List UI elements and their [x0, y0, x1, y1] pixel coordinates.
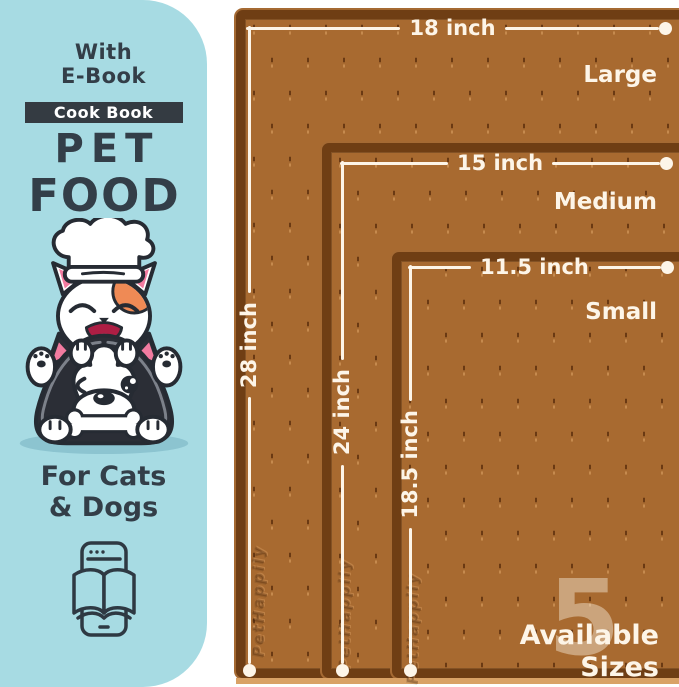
height-label-small: 18.5 inch — [398, 401, 422, 528]
ebook-tablet-icon — [66, 539, 142, 643]
dimension-line — [248, 397, 251, 664]
dimension-endpoint-dot — [336, 664, 349, 677]
dimension-line — [246, 27, 400, 30]
dimension-endpoint-dot — [404, 664, 417, 677]
size-name-large: Large — [583, 62, 657, 88]
dimension-line — [341, 465, 344, 664]
pet-food-mat-product-image: With E-Book Cook Book PET FOOD — [0, 0, 679, 687]
product-title-line1: PET — [7, 129, 207, 169]
height-label-large: 28 inch — [237, 293, 261, 397]
width-measurement-large: 18 inch — [246, 21, 672, 35]
audience-line1: For Cats — [41, 461, 167, 492]
dimension-line — [409, 265, 412, 401]
available-sizes-text: Available Sizes — [520, 620, 659, 685]
width-measurement-small: 11.5 inch — [408, 260, 674, 274]
with-ebook-line1: With — [75, 40, 132, 64]
dimension-line — [248, 26, 251, 293]
width-label-small: 11.5 inch — [471, 255, 598, 279]
product-title-line2: FOOD — [2, 173, 207, 218]
dimension-endpoint-dot — [243, 664, 256, 677]
dimension-endpoint-dot — [659, 22, 672, 35]
height-measurement-small: 18.5 inch — [403, 265, 417, 677]
cookbook-badge-label: Cook Book — [54, 103, 153, 122]
dimension-line — [408, 266, 471, 269]
dimension-endpoint-dot — [661, 261, 674, 274]
height-measurement-medium: 24 inch — [335, 161, 349, 677]
available-sizes-line1: Available — [520, 620, 659, 651]
available-sizes-line2: Sizes — [580, 652, 659, 683]
dimension-line — [598, 266, 661, 269]
size-name-medium: Medium — [554, 189, 657, 215]
size-name-small: Small — [585, 299, 657, 325]
with-ebook-text: With E-Book — [0, 40, 207, 89]
width-label-medium: 15 inch — [448, 151, 552, 175]
dimension-line — [552, 162, 660, 165]
pets-illustration-svg — [6, 218, 202, 457]
dimension-endpoint-dot — [660, 157, 673, 170]
audience-text: For Cats & Dogs — [0, 461, 207, 524]
cookbook-badge: Cook Book — [25, 102, 183, 123]
cat-and-dog-chef-illustration — [6, 218, 202, 461]
width-measurement-medium: 15 inch — [340, 156, 673, 170]
dimension-line — [341, 161, 344, 360]
product-title: PET FOOD — [0, 129, 207, 218]
height-measurement-large: 28 inch — [242, 26, 256, 677]
with-ebook-line2: E-Book — [61, 64, 146, 88]
audience-line2: & Dogs — [49, 492, 158, 523]
height-label-medium: 24 inch — [330, 360, 354, 464]
dimension-line — [505, 27, 659, 30]
dimension-line — [409, 528, 412, 664]
width-label-large: 18 inch — [400, 16, 504, 40]
left-info-panel: With E-Book Cook Book PET FOOD — [0, 0, 207, 687]
dimension-line — [340, 162, 448, 165]
